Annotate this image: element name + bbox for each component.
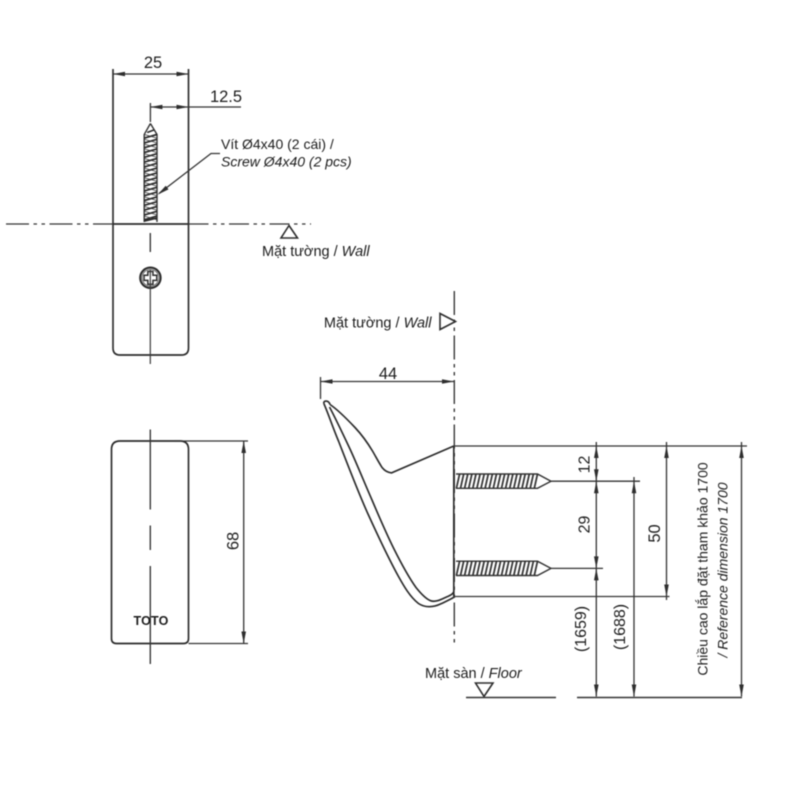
svg-text:29: 29	[577, 516, 594, 534]
svg-text:Mặt sàn / Floor: Mặt sàn / Floor	[425, 666, 523, 682]
svg-text:/ Reference dimension 1700: / Reference dimension 1700	[715, 482, 731, 658]
svg-text:12.5: 12.5	[210, 88, 242, 106]
svg-text:​Screw Ø4x40 (2 pcs): ​Screw Ø4x40 (2 pcs)	[221, 154, 352, 170]
svg-text:Vít Ø4x40 (2 cái) /: Vít Ø4x40 (2 cái) /	[221, 136, 334, 152]
svg-text:(1688): (1688)	[612, 604, 629, 650]
svg-text:Mặt tường / Wall: Mặt tường / Wall	[324, 316, 432, 332]
svg-text:50: 50	[646, 524, 664, 542]
svg-text:(1659): (1659)	[573, 606, 590, 652]
svg-text:44: 44	[379, 365, 397, 383]
svg-text:12: 12	[577, 456, 594, 474]
svg-text:Mặt tường / Wall: Mặt tường / Wall	[262, 244, 370, 260]
svg-text:68: 68	[225, 532, 243, 550]
svg-text:Chiều cao lắp đặt tham khảo 17: Chiều cao lắp đặt tham khảo 1700	[695, 462, 711, 675]
svg-text:TOTO: TOTO	[133, 614, 168, 628]
svg-text:25: 25	[144, 54, 162, 72]
